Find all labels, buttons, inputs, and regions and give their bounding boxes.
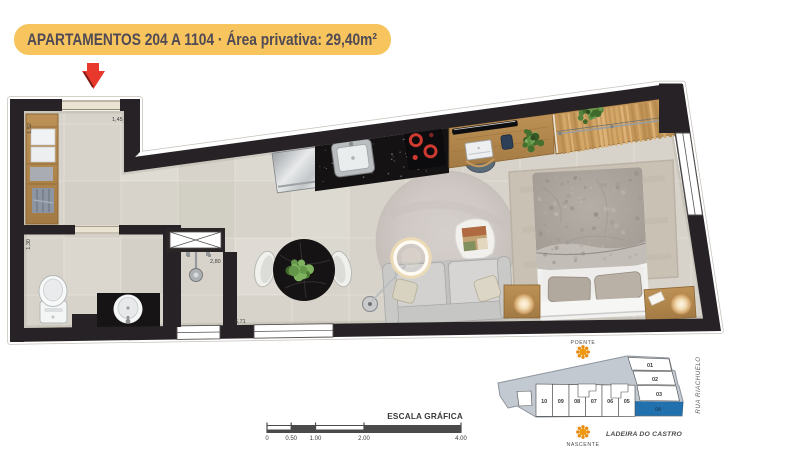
svg-text:05: 05 <box>624 399 630 405</box>
svg-text:2,80: 2,80 <box>210 259 221 265</box>
svg-text:1,45: 1,45 <box>112 117 123 123</box>
svg-text:07: 07 <box>591 399 597 405</box>
svg-text:2.00: 2.00 <box>358 436 370 442</box>
svg-text:4.00: 4.00 <box>455 436 467 442</box>
svg-text:08: 08 <box>574 399 580 405</box>
svg-text:0: 0 <box>265 436 269 442</box>
svg-text:0.50: 0.50 <box>285 436 297 442</box>
svg-text:6,71: 6,71 <box>235 319 246 325</box>
svg-text:1,52: 1,52 <box>27 123 33 134</box>
svg-text:06: 06 <box>607 399 613 405</box>
svg-text:ESCALA GRÁFICA: ESCALA GRÁFICA <box>387 411 463 421</box>
svg-text:01: 01 <box>647 363 653 369</box>
svg-text:10: 10 <box>541 399 547 405</box>
svg-text:1,30: 1,30 <box>26 239 32 250</box>
svg-text:NASCENTE: NASCENTE <box>566 442 599 448</box>
svg-text:02: 02 <box>652 377 658 383</box>
svg-text:03: 03 <box>656 392 662 398</box>
svg-text:1.00: 1.00 <box>310 436 322 442</box>
svg-text:RUA RIACHUELO: RUA RIACHUELO <box>695 356 702 413</box>
svg-text:09: 09 <box>558 399 564 405</box>
svg-text:APARTAMENTOS 204 A 1104 · Área: APARTAMENTOS 204 A 1104 · Área privativa… <box>27 30 377 49</box>
svg-text:LADEIRA DO CASTRO: LADEIRA DO CASTRO <box>606 431 683 438</box>
svg-text:04: 04 <box>655 407 662 413</box>
